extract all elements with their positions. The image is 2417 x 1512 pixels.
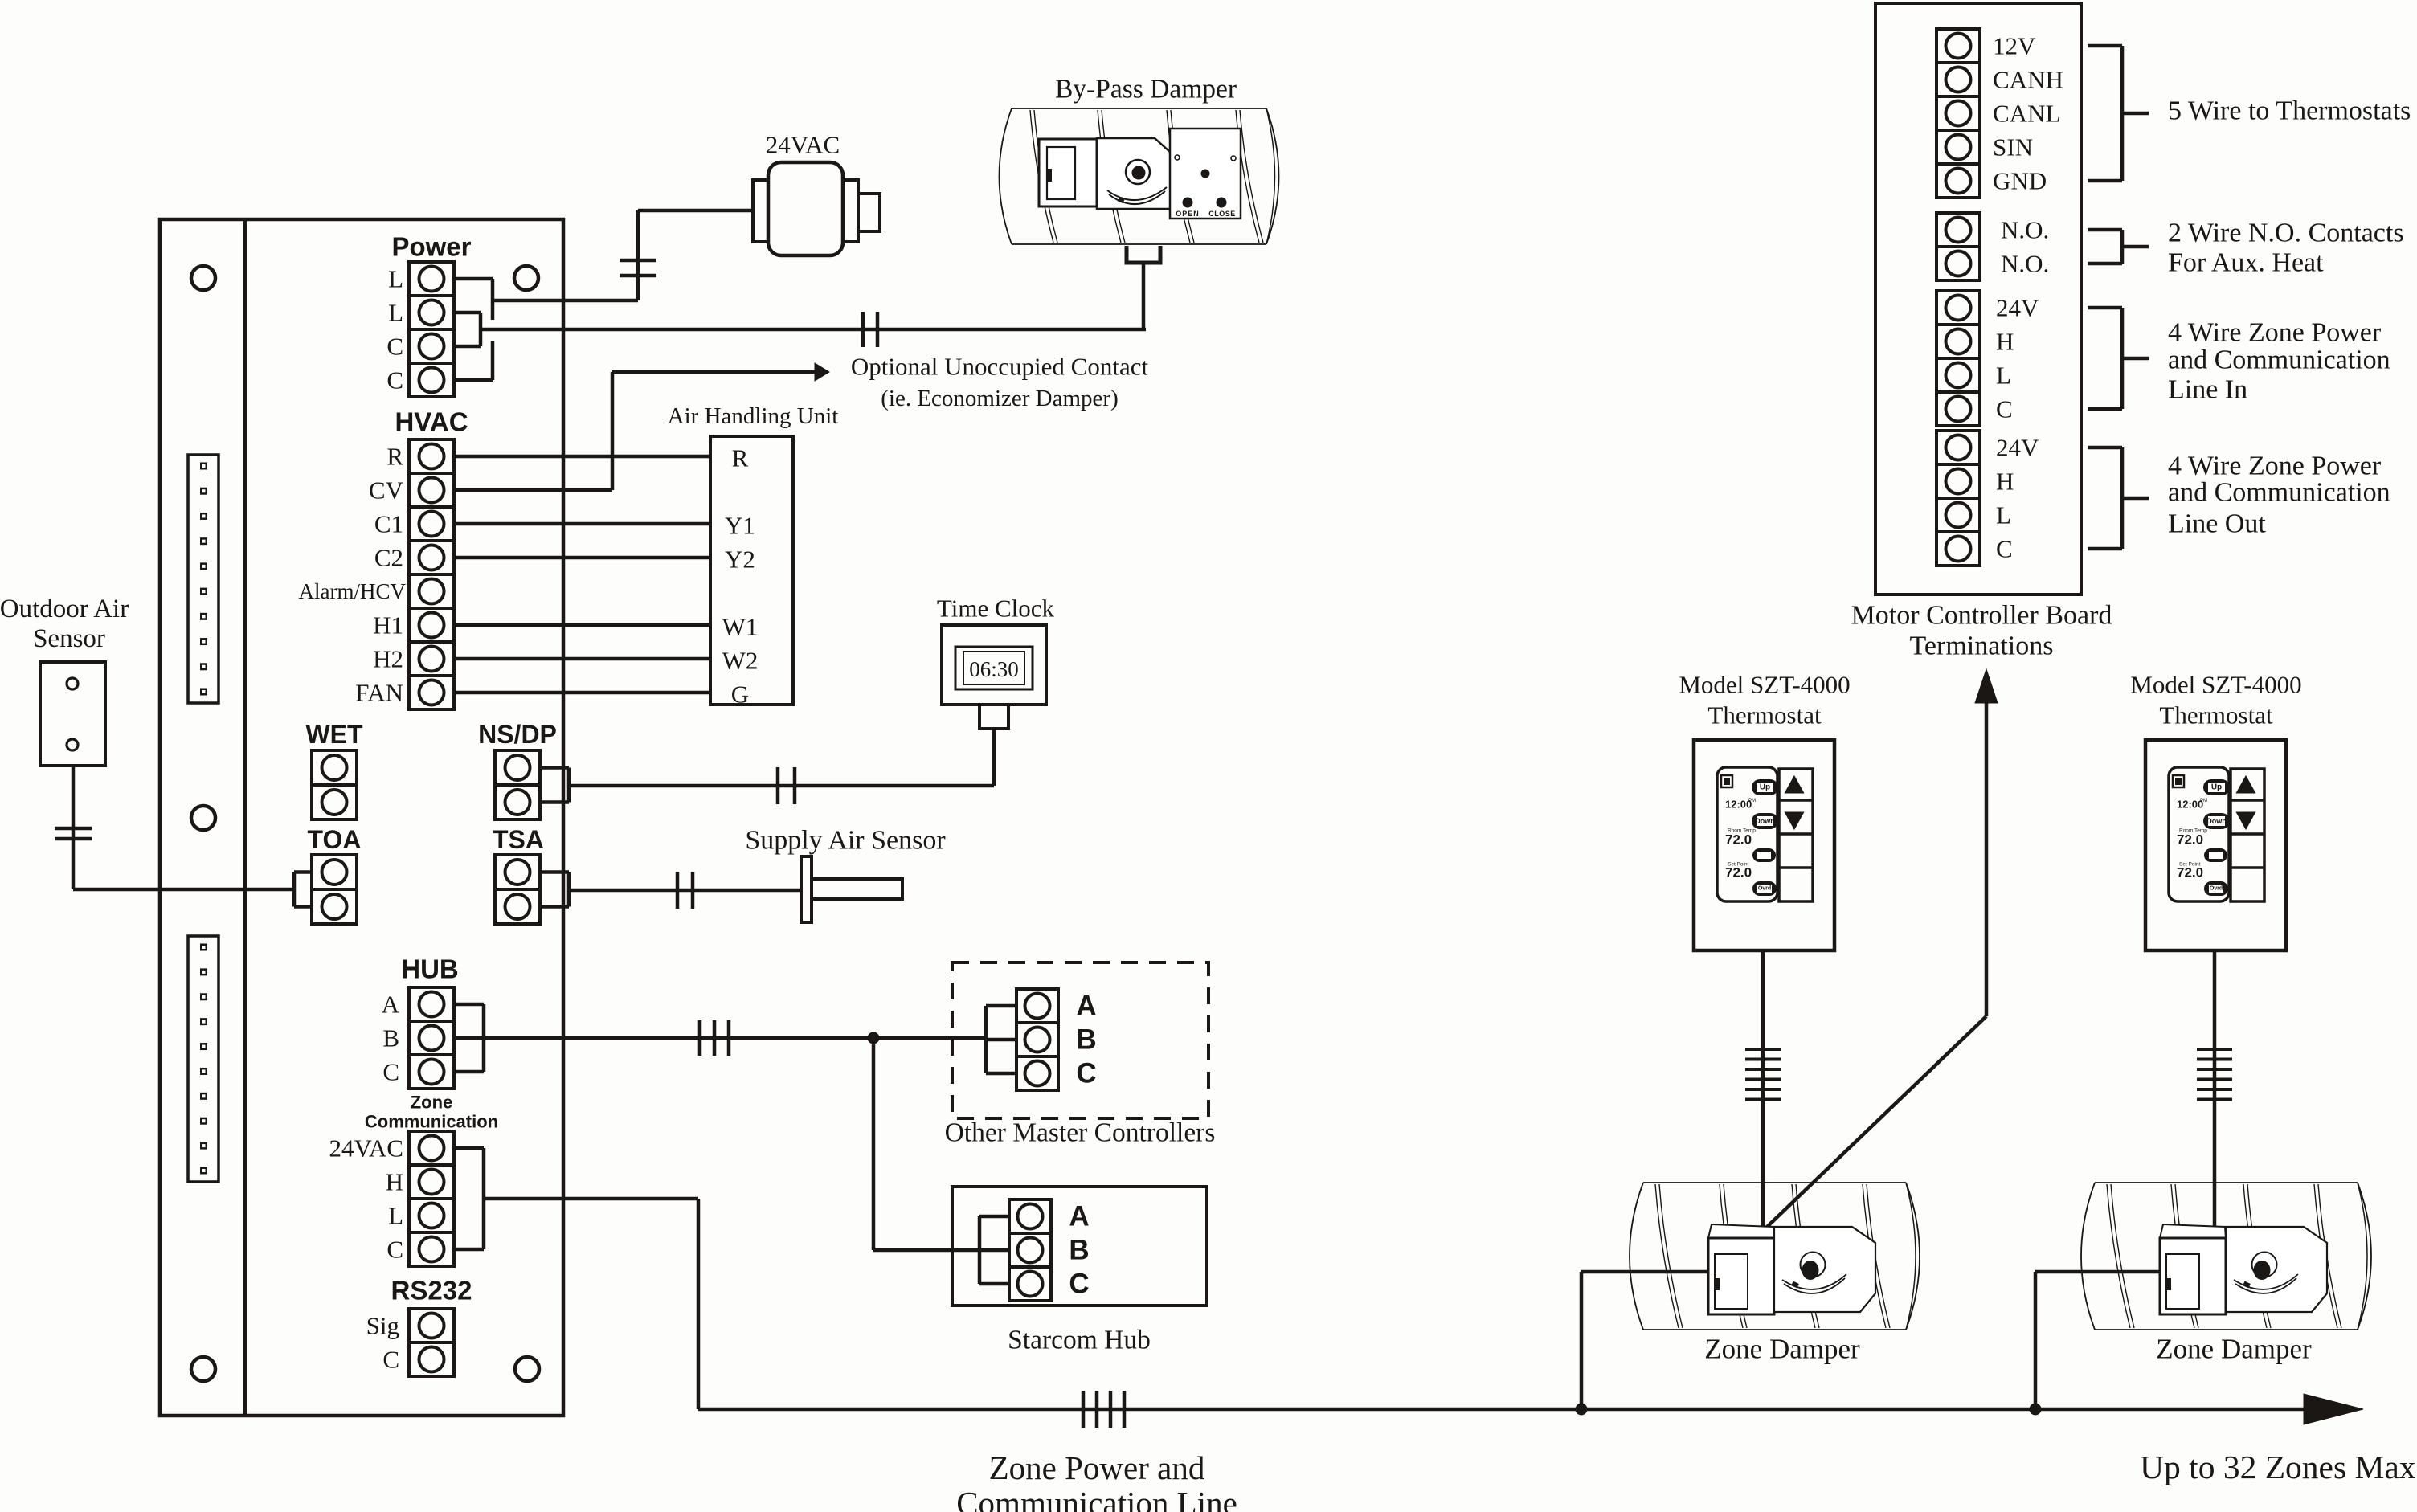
svg-text:24VAC: 24VAC <box>766 131 840 159</box>
svg-text:Sig: Sig <box>366 1312 399 1340</box>
svg-text:Supply Air Sensor: Supply Air Sensor <box>745 826 946 856</box>
svg-text:H: H <box>1996 468 2014 496</box>
svg-text:Other Master Controllers: Other Master Controllers <box>945 1118 1216 1148</box>
svg-text:Sensor: Sensor <box>33 624 105 653</box>
svg-text:C2: C2 <box>374 544 403 572</box>
svg-text:R: R <box>732 444 749 472</box>
svg-text:Zone Power and: Zone Power and <box>989 1449 1205 1486</box>
svg-text:A: A <box>1076 991 1096 1022</box>
svg-text:Air Handling Unit: Air Handling Unit <box>668 403 839 429</box>
svg-text:L: L <box>388 1202 403 1230</box>
svg-text:W1: W1 <box>722 613 759 641</box>
svg-text:12V: 12V <box>1993 32 2036 60</box>
svg-text:C1: C1 <box>374 510 403 538</box>
svg-text:4 Wire Zone Power: 4 Wire Zone Power <box>2168 318 2382 348</box>
svg-text:Model SZT-4000: Model SZT-4000 <box>2130 671 2301 699</box>
svg-text:L: L <box>388 299 403 327</box>
svg-text:C: C <box>1996 395 2013 423</box>
svg-text:GND: GND <box>1993 167 2047 195</box>
svg-text:NS/DP: NS/DP <box>478 720 557 749</box>
svg-text:72.0: 72.0 <box>2177 865 2203 881</box>
svg-text:W2: W2 <box>722 647 759 675</box>
svg-text:Line Out: Line Out <box>2168 509 2266 539</box>
svg-text:B: B <box>382 1024 399 1052</box>
svg-text:Motor Controller Board: Motor Controller Board <box>1851 601 2112 631</box>
svg-text:4 Wire Zone Power: 4 Wire Zone Power <box>2168 452 2382 481</box>
svg-text:By-Pass Damper: By-Pass Damper <box>1055 75 1237 104</box>
svg-text:Power: Power <box>391 232 471 262</box>
svg-text:Model SZT-4000: Model SZT-4000 <box>1679 671 1850 699</box>
svg-text:and Communication: and Communication <box>2168 478 2390 508</box>
svg-text:C: C <box>1069 1269 1089 1300</box>
svg-text:OPEN: OPEN <box>1176 210 1200 218</box>
svg-text:N.O.: N.O. <box>2001 250 2049 278</box>
svg-text:C: C <box>1996 535 2013 563</box>
svg-text:72.0: 72.0 <box>2177 832 2203 848</box>
svg-text:Outdoor Air: Outdoor Air <box>0 595 129 623</box>
svg-text:Communication Line: Communication Line <box>956 1485 1237 1512</box>
svg-text:RS232: RS232 <box>391 1276 472 1306</box>
svg-text:Thermostat: Thermostat <box>2159 701 2273 729</box>
svg-text:CANL: CANL <box>1993 100 2060 128</box>
svg-text:B: B <box>1076 1024 1096 1056</box>
svg-text:Starcom Hub: Starcom Hub <box>1008 1326 1151 1355</box>
svg-text:PM: PM <box>2200 799 2207 803</box>
svg-text:Communication: Communication <box>365 1112 498 1132</box>
svg-text:L: L <box>1996 362 2011 390</box>
svg-text:C: C <box>386 333 403 361</box>
svg-text:CV: CV <box>369 476 404 505</box>
svg-text:C: C <box>382 1346 399 1374</box>
svg-text:Terminations: Terminations <box>1910 631 2054 661</box>
svg-text:L: L <box>388 265 403 293</box>
svg-text:FAN: FAN <box>355 679 403 707</box>
svg-text:Down: Down <box>1755 817 1775 825</box>
svg-text:Alarm/HCV: Alarm/HCV <box>299 579 407 603</box>
svg-text:C: C <box>386 1236 403 1264</box>
svg-text:TSA: TSA <box>493 825 544 854</box>
svg-text:G: G <box>731 680 749 709</box>
svg-text:H2: H2 <box>373 645 403 673</box>
svg-text:PM: PM <box>1748 799 1756 803</box>
svg-text:Optional Unoccupied Contact: Optional Unoccupied Contact <box>851 353 1149 381</box>
svg-text:CLOSE: CLOSE <box>1208 210 1236 218</box>
svg-text:Thermostat: Thermostat <box>1707 701 1822 729</box>
svg-text:N.O.: N.O. <box>2001 216 2049 244</box>
svg-text:Up: Up <box>1760 783 1770 792</box>
svg-text:Y2: Y2 <box>725 546 755 574</box>
svg-text:H1: H1 <box>373 611 403 640</box>
svg-text:(ie. Economizer Damper): (ie. Economizer Damper) <box>881 386 1119 411</box>
svg-text:A: A <box>1069 1201 1089 1232</box>
svg-text:TOA: TOA <box>308 825 362 854</box>
svg-text:B: B <box>1069 1235 1089 1266</box>
svg-text:Ovrd: Ovrd <box>2210 886 2223 892</box>
svg-text:and Communication: and Communication <box>2168 345 2390 375</box>
svg-text:72.0: 72.0 <box>1725 865 1752 881</box>
svg-text:Time Clock: Time Clock <box>937 595 1055 623</box>
svg-text:H: H <box>1996 328 2014 356</box>
svg-text:Zone: Zone <box>411 1093 453 1113</box>
svg-text:CANH: CANH <box>1993 66 2063 94</box>
svg-text:72.0: 72.0 <box>1725 832 1752 848</box>
svg-text:Zone Damper: Zone Damper <box>1704 1334 1860 1365</box>
svg-text:2 Wire N.O. Contacts: 2 Wire N.O. Contacts <box>2168 219 2404 248</box>
svg-text:R: R <box>386 443 403 471</box>
svg-text:24V: 24V <box>1996 434 2039 462</box>
svg-text:HVAC: HVAC <box>395 407 468 437</box>
svg-text:5 Wire to Thermostats: 5 Wire to Thermostats <box>2168 96 2411 126</box>
svg-text:Zone Damper: Zone Damper <box>2156 1334 2312 1365</box>
svg-text:Up: Up <box>2211 783 2222 792</box>
svg-text:SIN: SIN <box>1993 133 2033 161</box>
svg-text:HUB: HUB <box>401 954 459 984</box>
svg-text:For Aux. Heat: For Aux. Heat <box>2168 248 2324 278</box>
svg-text:H: H <box>386 1168 403 1196</box>
svg-text:24VAC: 24VAC <box>329 1134 403 1163</box>
svg-text:C: C <box>382 1058 399 1086</box>
svg-text:WET: WET <box>305 720 363 749</box>
svg-text:Ovrd: Ovrd <box>1758 886 1771 892</box>
svg-text:C: C <box>1076 1058 1096 1089</box>
svg-text:A: A <box>382 991 400 1019</box>
svg-text:Line In: Line In <box>2168 375 2247 405</box>
svg-text:C: C <box>386 366 403 394</box>
svg-text:L: L <box>1996 501 2011 529</box>
svg-text:Up to 32 Zones Max.: Up to 32 Zones Max. <box>2140 1449 2417 1485</box>
svg-text:06:30: 06:30 <box>969 657 1019 681</box>
svg-text:Y1: Y1 <box>725 512 755 540</box>
svg-text:Down: Down <box>2206 817 2227 825</box>
svg-text:24V: 24V <box>1996 294 2039 322</box>
